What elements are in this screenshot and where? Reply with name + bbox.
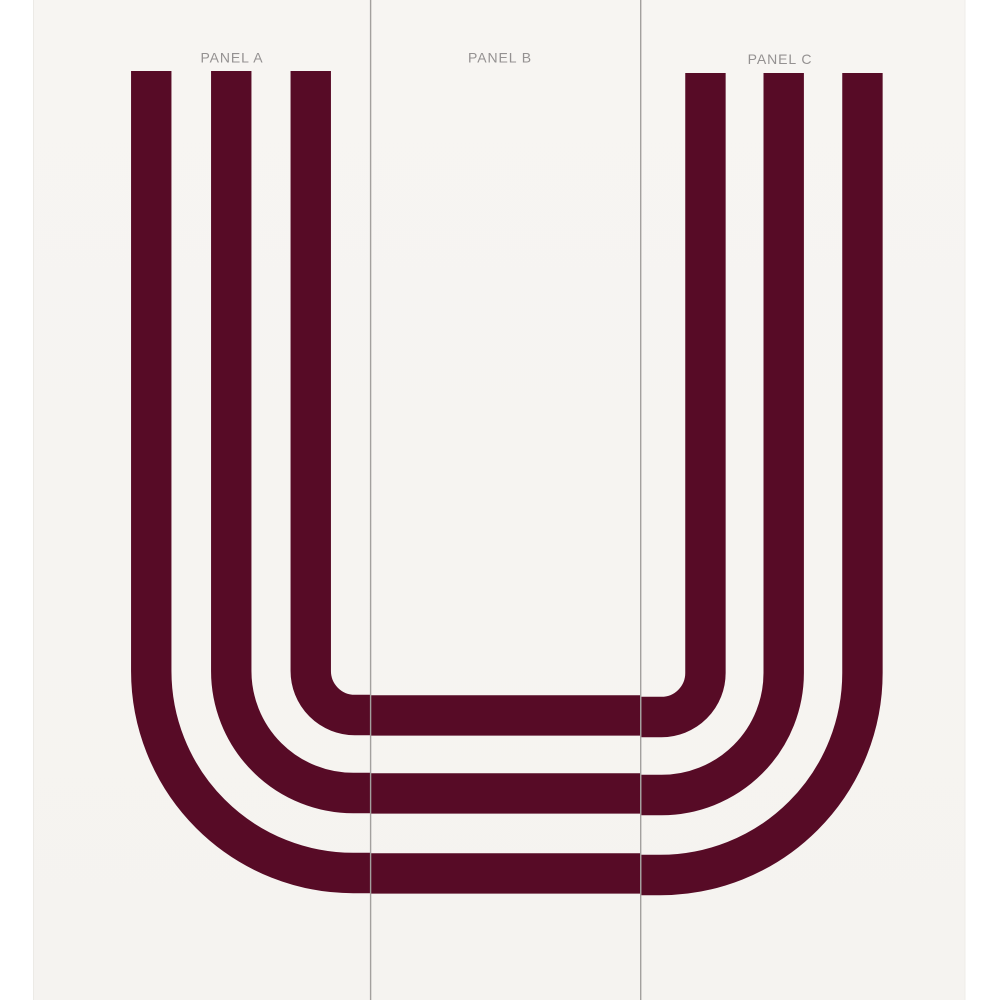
svg-text:PANEL A: PANEL A (200, 49, 263, 65)
svg-text:PANEL B: PANEL B (468, 49, 532, 65)
svg-text:PANEL C: PANEL C (748, 51, 813, 67)
